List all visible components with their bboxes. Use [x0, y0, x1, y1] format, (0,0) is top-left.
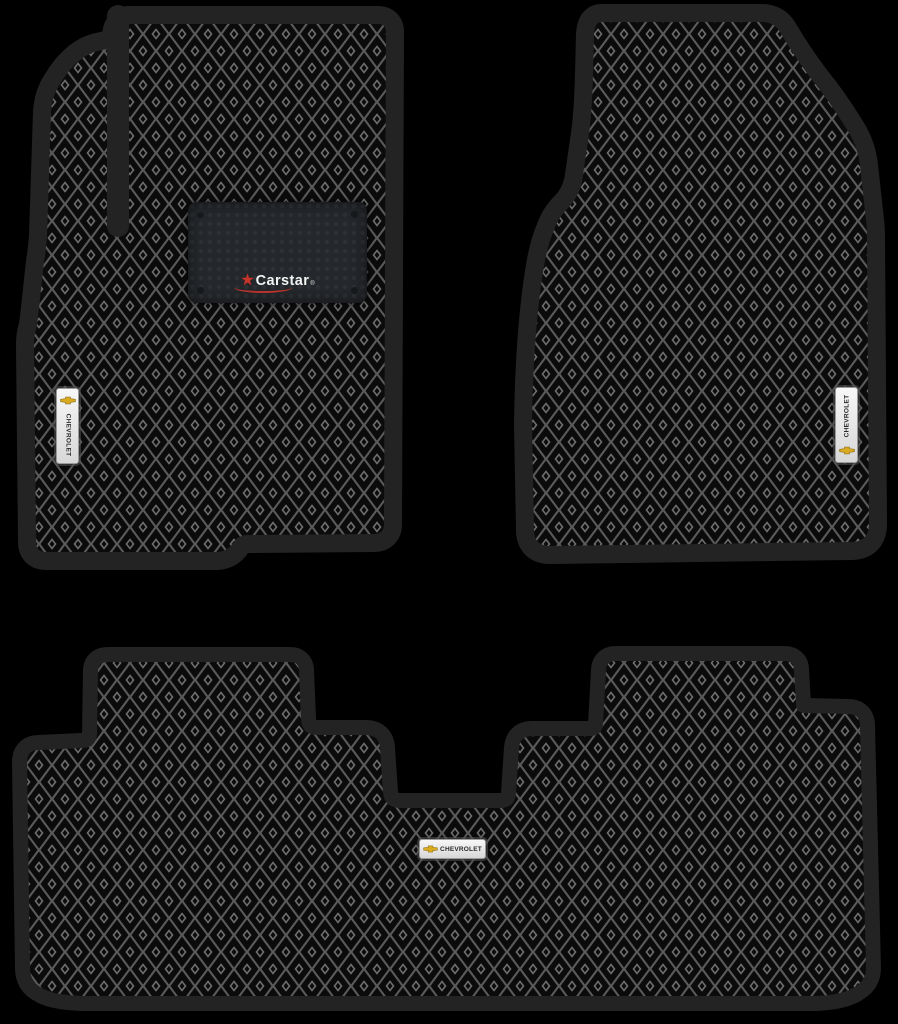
product-image-floor-mats: ★Carstar® CHEVROLET CHEVROLET CHEVROLET	[0, 0, 898, 1024]
carstar-brand-patch: ★Carstar®	[188, 202, 367, 303]
carstar-logo: ★Carstar®	[240, 273, 314, 289]
chevrolet-bowtie-icon	[423, 845, 438, 853]
badge-label: CHEVROLET	[440, 846, 482, 853]
badge-label: CHEVROLET	[843, 395, 850, 438]
chevrolet-badge-front-right: CHEVROLET	[835, 387, 858, 463]
chevrolet-bowtie-icon	[60, 396, 76, 405]
registered-mark: ®	[310, 281, 314, 287]
rear-mat	[27, 661, 866, 996]
front-right-mat	[532, 22, 869, 546]
chevrolet-bowtie-icon	[839, 446, 855, 455]
chevrolet-badge-front-left: CHEVROLET	[56, 388, 79, 464]
red-swoosh	[234, 282, 292, 293]
badge-label: CHEVROLET	[64, 414, 71, 457]
mats-illustration	[0, 0, 898, 1024]
chevrolet-badge-rear: CHEVROLET	[419, 839, 486, 859]
patch-rivets	[197, 211, 204, 218]
